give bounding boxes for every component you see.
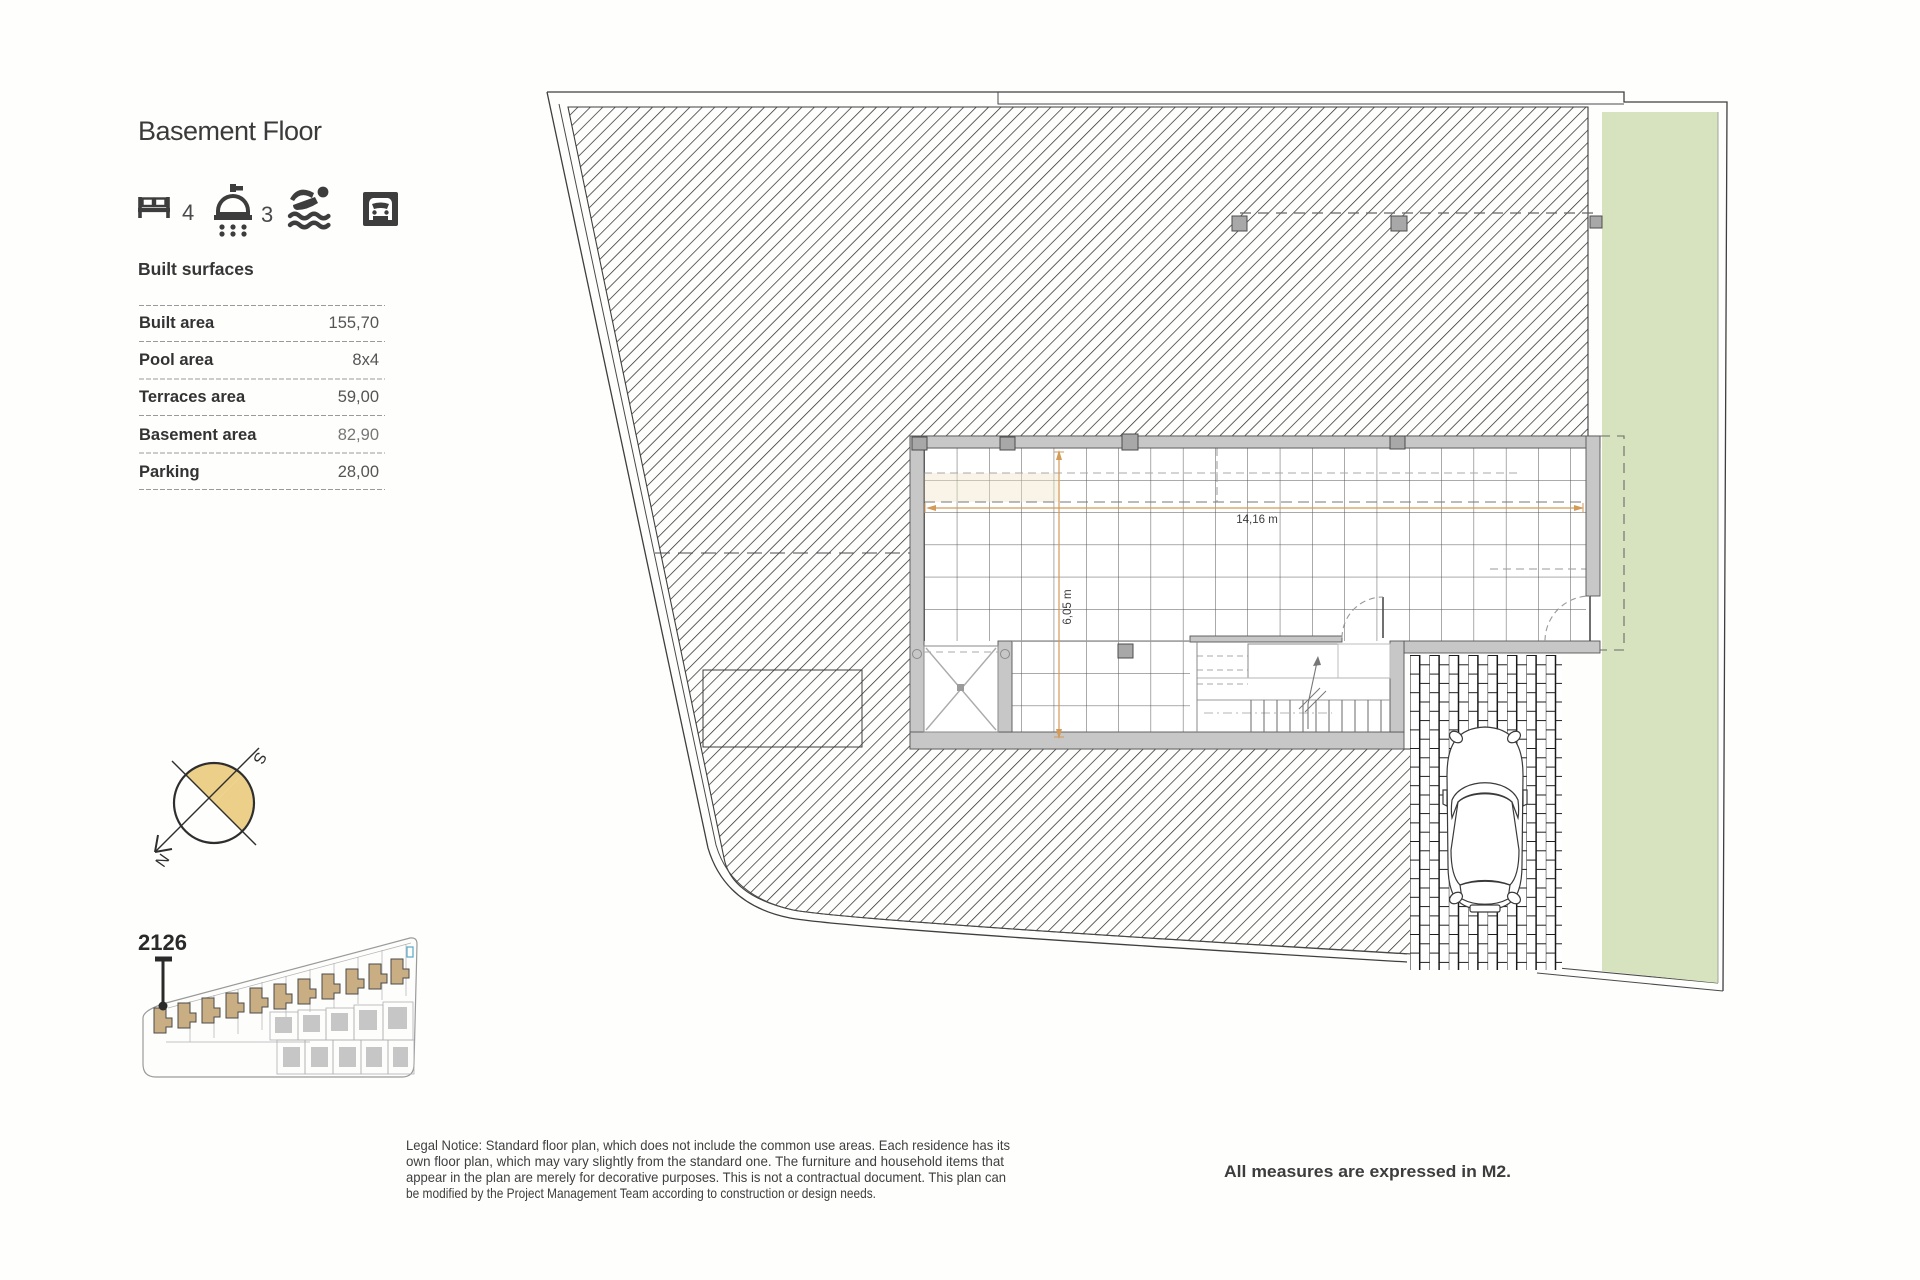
svg-text:3: 3 <box>261 202 273 227</box>
svg-text:Built area: Built area <box>139 314 215 332</box>
svg-text:4: 4 <box>182 200 194 225</box>
svg-text:N: N <box>153 851 174 870</box>
svg-text:28,00: 28,00 <box>338 463 379 481</box>
svg-text:8x4: 8x4 <box>352 351 379 369</box>
svg-text:All measures are expressed in: All measures are expressed in M2. <box>1224 1162 1511 1181</box>
svg-text:Pool area: Pool area <box>139 351 214 369</box>
svg-text:Terraces area: Terraces area <box>139 388 246 406</box>
svg-text:S: S <box>249 749 269 766</box>
svg-text:Legal Notice: Standard floor p: Legal Notice: Standard floor plan, which… <box>406 1137 1010 1153</box>
svg-text:own floor plan, which may vary: own floor plan, which may vary slightly … <box>406 1153 1004 1169</box>
svg-text:14,16 m: 14,16 m <box>1236 514 1278 526</box>
svg-text:appear in the plan are merely: appear in the plan are merely for decora… <box>406 1169 1006 1185</box>
svg-text:59,00: 59,00 <box>338 388 379 406</box>
svg-text:82,90: 82,90 <box>338 426 379 444</box>
svg-text:2126: 2126 <box>138 930 187 955</box>
svg-text:6,05 m: 6,05 m <box>1062 589 1074 624</box>
svg-text:be modified by the Project Man: be modified by the Project Management Te… <box>406 1185 876 1201</box>
svg-text:Built surfaces: Built surfaces <box>138 259 254 279</box>
svg-text:155,70: 155,70 <box>329 314 379 332</box>
svg-text:Basement area: Basement area <box>139 426 257 444</box>
svg-text:Parking: Parking <box>139 463 200 481</box>
svg-text:Basement Floor: Basement Floor <box>138 116 322 146</box>
